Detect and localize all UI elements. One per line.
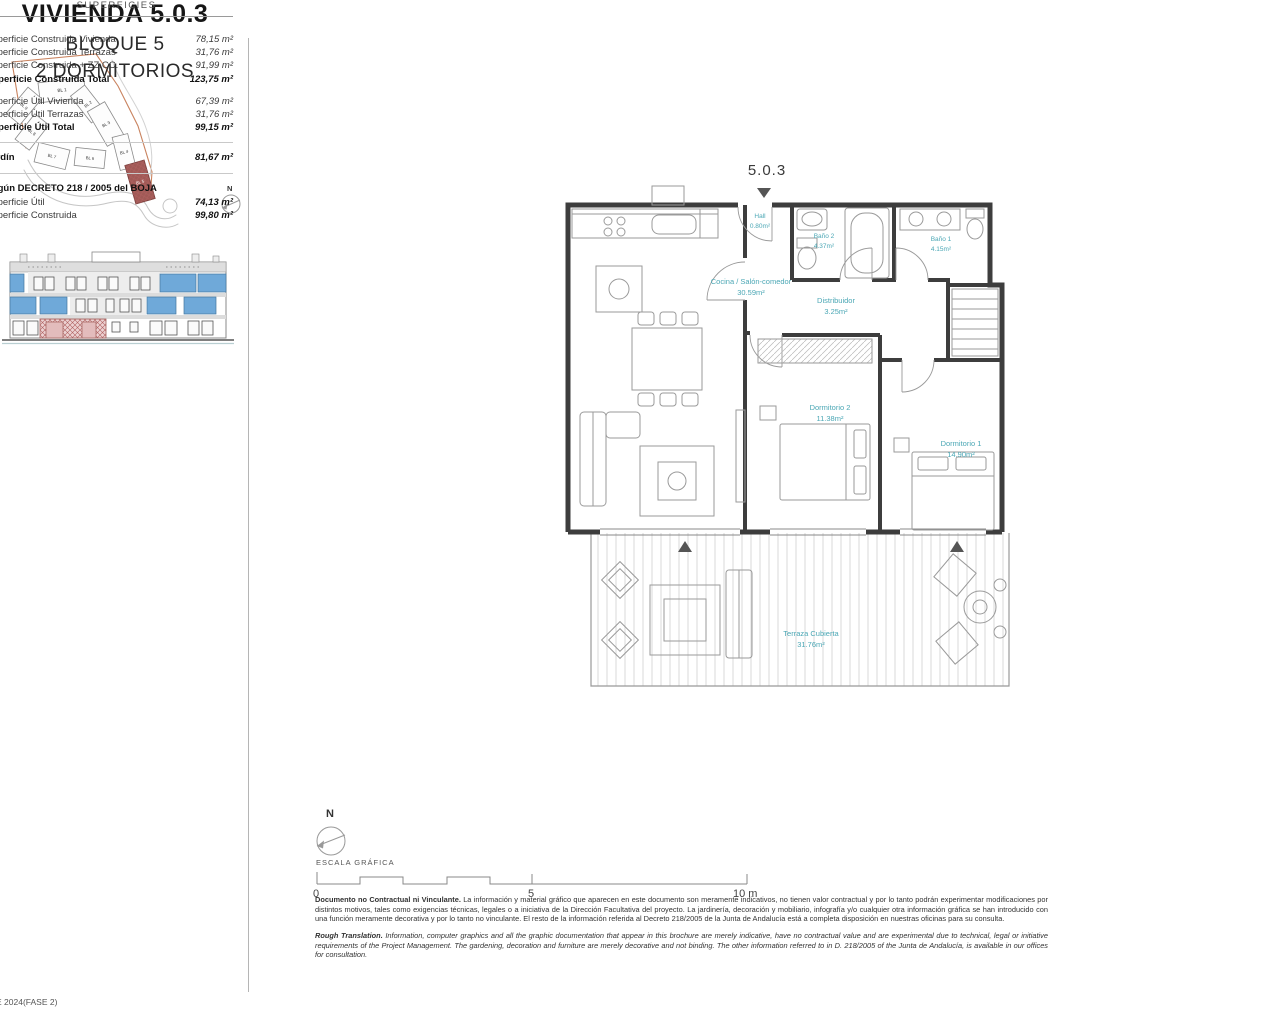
wardrobe-dorm1 (952, 289, 998, 356)
disclaimer-english-lead: Rough Translation. (315, 931, 383, 940)
disclaimer-spanish: Documento no Contractual ni Vinculante. … (315, 895, 1048, 924)
scale-title: ESCALA GRÁFICA (316, 858, 395, 867)
room-label-dormitorio2: Dormitorio 2 11.38m² (810, 402, 851, 425)
room-label-cocina-salon: Cocina / Salón-comedor 30.59m² (711, 276, 791, 299)
room-area: 4.37m² (814, 242, 835, 252)
table-divider (0, 173, 233, 174)
disclaimer-spanish-lead: Documento no Contractual ni Vinculante. (315, 895, 461, 904)
interior-walls (745, 205, 1002, 532)
row-label: Superficie Construida Vivienda (0, 33, 116, 46)
room-area: 0.80m² (750, 222, 770, 232)
room-name: Terraza Cubierta (783, 628, 838, 639)
dining-set (632, 312, 702, 406)
disclaimer-english-body: Information, computer graphics and all t… (315, 931, 1048, 959)
room-area: 31.76m² (783, 639, 838, 650)
north-label-small: N (227, 184, 232, 193)
room-name: Hall (750, 212, 770, 222)
brochure-page: BL 1 BL 2 BL 3 BL 4 BL 5 BL 6 (0, 0, 1280, 1024)
row-value: 91,99 m² (196, 59, 234, 72)
room-label-bano2: Baño 2 4.37m² (814, 232, 835, 252)
room-area: 3.25m² (817, 306, 855, 317)
room-name: Dormitorio 1 (941, 438, 982, 449)
surfaces-table: SUPERFICIES Superficie Construida Vivien… (0, 0, 233, 222)
table-row: Superficie Construida Vivienda78,15 m² (0, 33, 233, 46)
table-row: Superficie Útil Vivienda67,39 m² (0, 95, 233, 108)
row-label: Superficie Útil (0, 196, 45, 209)
row-label: Jardín (0, 151, 15, 164)
north-compass-scale (317, 827, 345, 855)
table-row: Superficie Útil74,13 m² (0, 196, 233, 209)
room-label-distribuidor: Distribuidor 3.25m² (817, 295, 855, 318)
room-area: 4.15m² (931, 245, 952, 255)
highlighted-unit (40, 319, 106, 338)
row-label: Superficie Construida Total (0, 73, 109, 86)
closet-dorm2 (758, 339, 872, 363)
room-label-dormitorio1: Dormitorio 1 14.90m² (941, 438, 982, 461)
room-area: 11.38m² (810, 413, 851, 424)
table-row-total: Superficie Útil Total99,15 m² (0, 121, 233, 134)
building-elevation (2, 252, 234, 344)
room-name: Distribuidor (817, 295, 855, 306)
living-furniture (580, 410, 745, 516)
row-value: 99,80 m² (195, 209, 233, 222)
row-value: 74,13 m² (195, 196, 233, 209)
row-label: Superficie Construida (0, 209, 77, 222)
plan-unit-label: 5.0.3 (737, 162, 797, 179)
footer-phase-code: E 2024(FASE 2) (0, 997, 57, 1007)
row-label: Superficie Útil Total (0, 121, 75, 134)
row-value: 31,76 m² (196, 46, 234, 59)
row-value: 78,15 m² (196, 33, 234, 46)
row-value: 123,75 m² (190, 73, 233, 86)
table-row: Superficie Útil Terrazas31,76 m² (0, 108, 233, 121)
table-row: Superficie Construida99,80 m² (0, 209, 233, 222)
row-label: Superficie Construida Terrazas (0, 46, 116, 59)
surfaces-header: SUPERFICIES (0, 0, 233, 16)
bathroom2-fixtures (797, 208, 889, 278)
graphic-scale-bar (317, 872, 747, 884)
room-name: Cocina / Salón-comedor (711, 276, 791, 287)
row-value: 67,39 m² (196, 95, 234, 108)
room-name: Dormitorio 2 (810, 402, 851, 413)
room-label-terraza: Terraza Cubierta 31.76m² (783, 628, 838, 651)
disclaimer-english: Rough Translation. Information, computer… (315, 931, 1048, 960)
row-label: Superficie Útil Vivienda (0, 95, 84, 108)
floor-plan (568, 186, 1009, 686)
row-value: 31,76 m² (196, 108, 234, 121)
row-value: 99,15 m² (195, 121, 233, 134)
row-label: Superficie Útil Terrazas (0, 108, 84, 121)
row-label: Superficie Construida + ZZ.CC. (0, 59, 118, 72)
table-row: Superficie Construida Terrazas31,76 m² (0, 46, 233, 59)
room-label-bano1: Baño 1 4.15m² (931, 235, 952, 255)
entrance-marker (757, 188, 771, 198)
room-name: Baño 1 (931, 235, 952, 245)
north-label-scale: N (326, 808, 334, 820)
surfaces-header-rule (0, 16, 233, 17)
terrace-decking (591, 533, 1009, 686)
table-divider (0, 142, 233, 143)
room-area: 14.90m² (941, 449, 982, 460)
table-row-total: Superficie Construida Total123,75 m² (0, 73, 233, 86)
room-label-hall: Hall 0.80m² (750, 212, 770, 232)
decreto-header: Según DECRETO 218 / 2005 del BOJA (0, 182, 233, 196)
table-row-jardin: Jardín81,67 m² (0, 151, 233, 164)
room-name: Baño 2 (814, 232, 835, 242)
table-row: Superficie Construida + ZZ.CC.91,99 m² (0, 59, 233, 72)
room-area: 30.59m² (711, 287, 791, 298)
row-value: 81,67 m² (195, 151, 233, 164)
